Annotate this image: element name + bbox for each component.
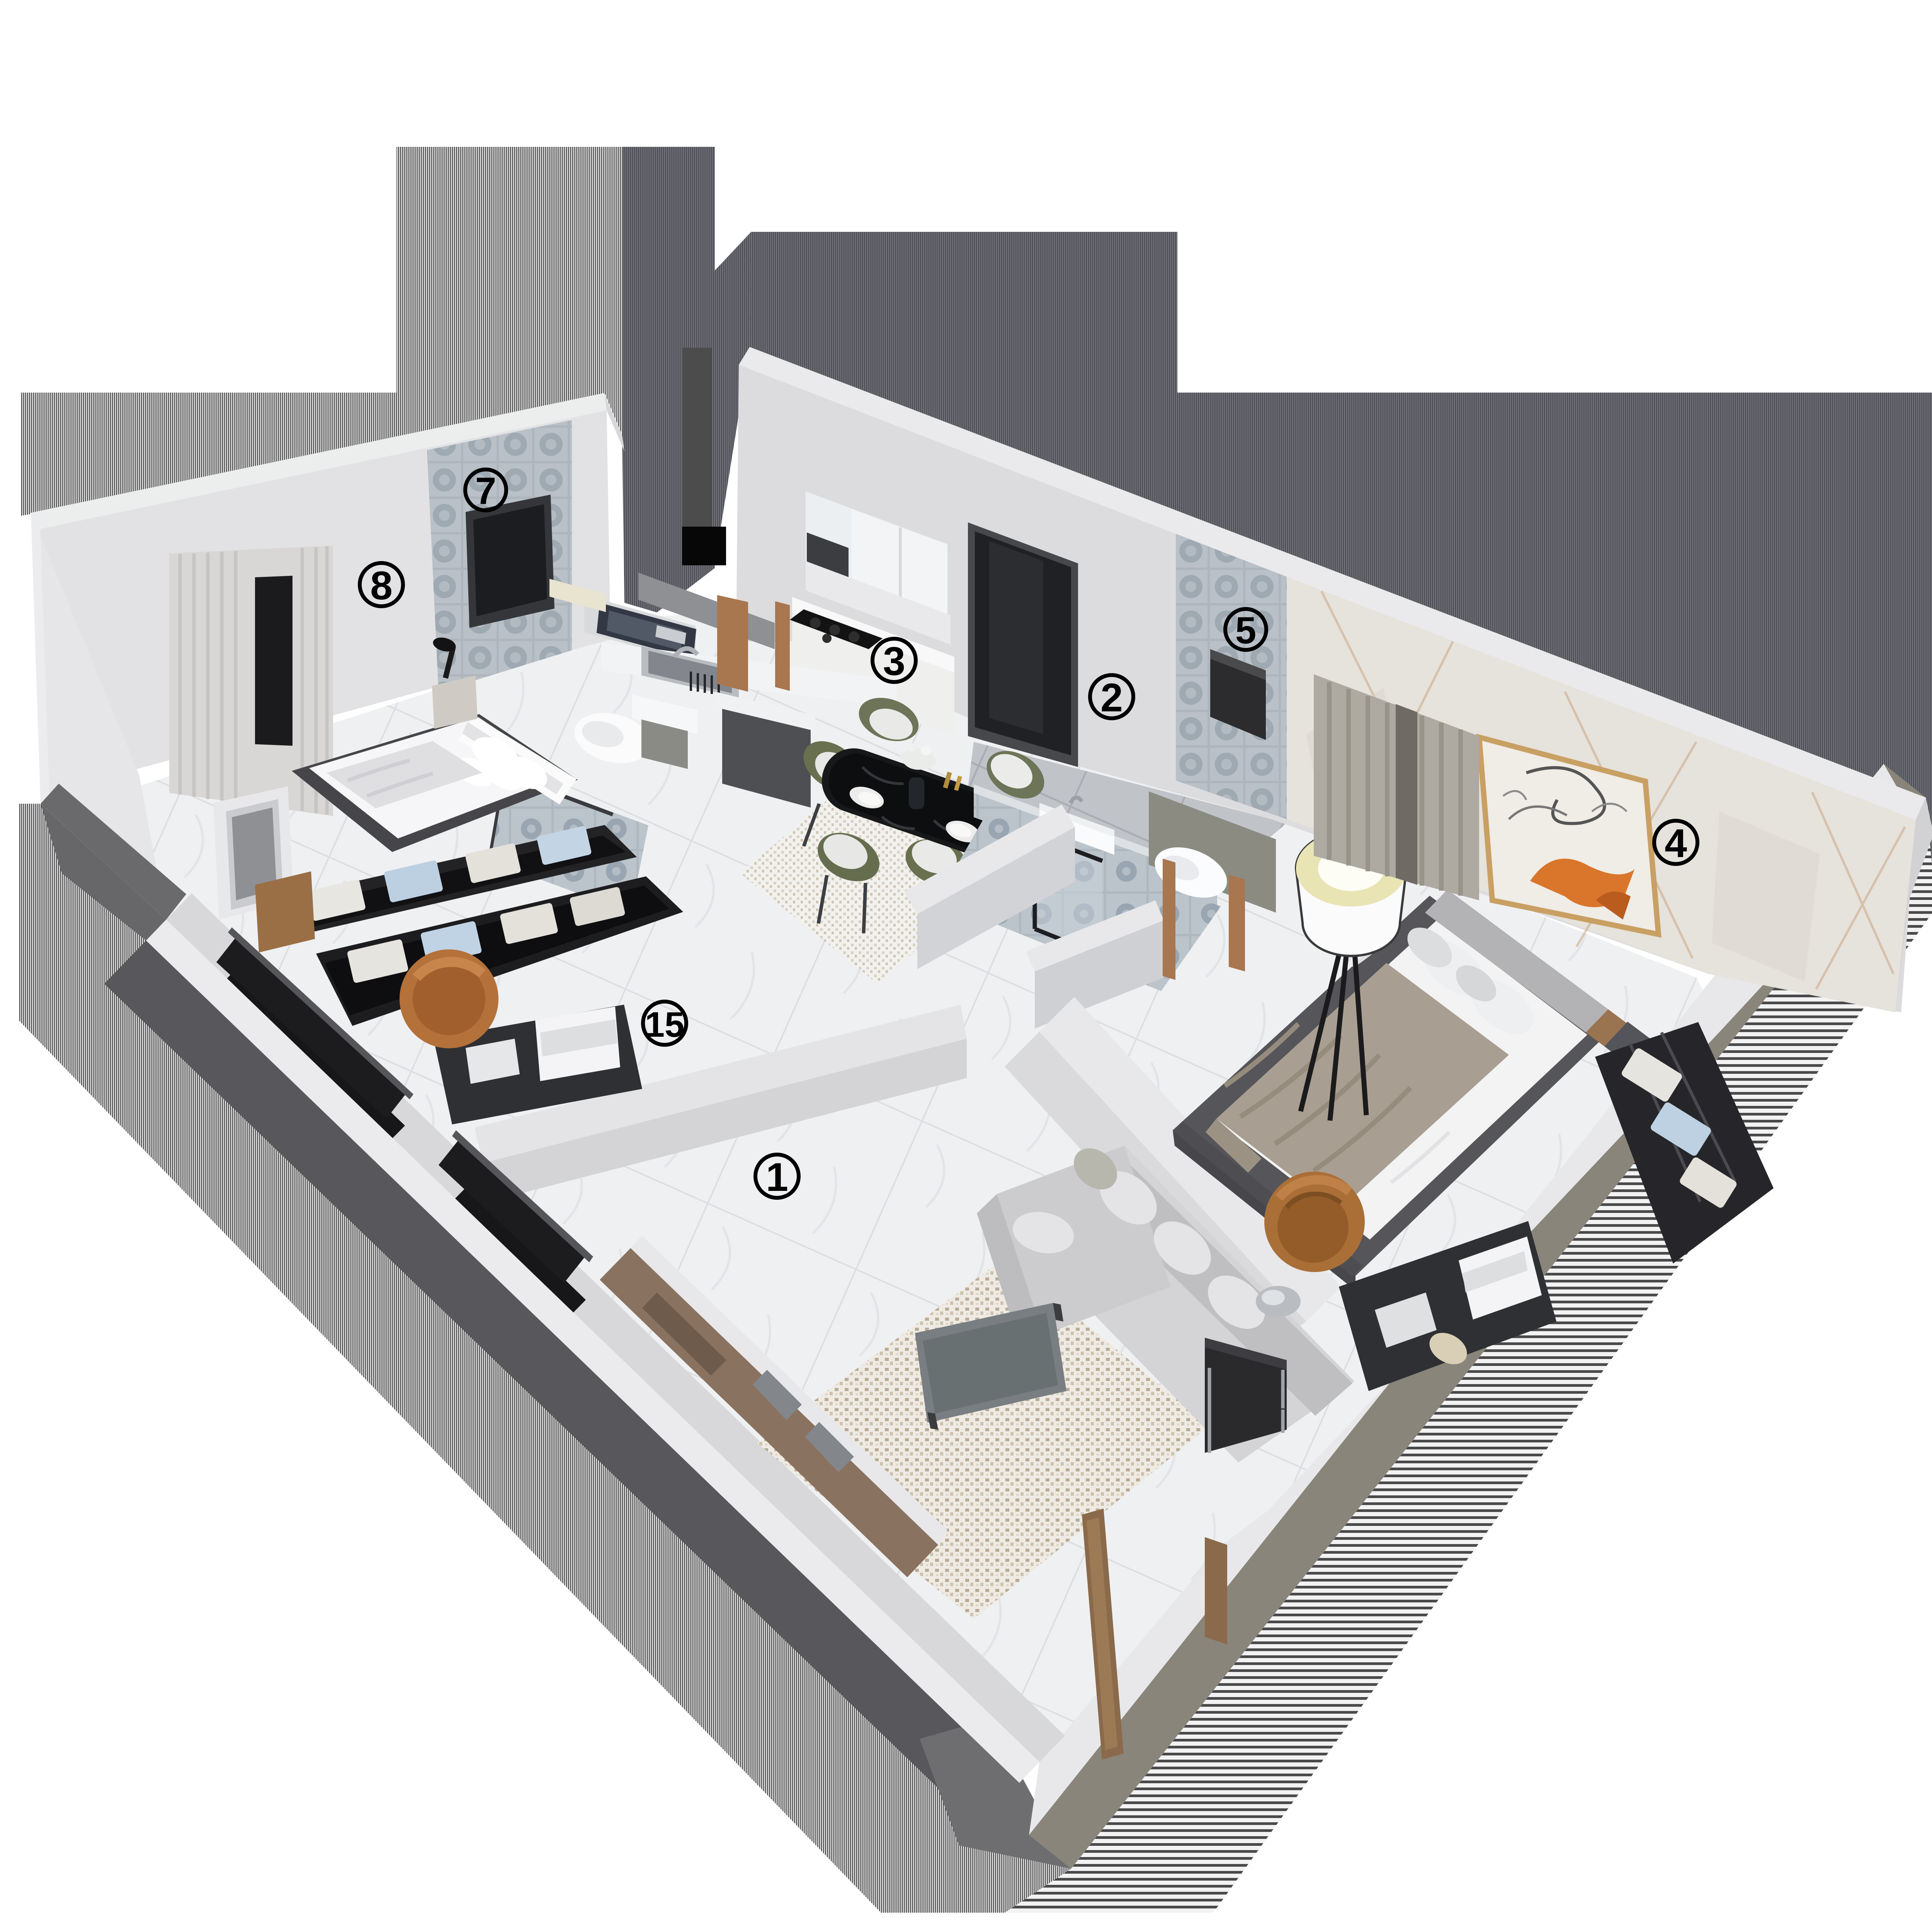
- svg-text:4: 4: [1665, 821, 1687, 866]
- svg-text:5: 5: [1235, 609, 1257, 651]
- svg-text:1: 1: [766, 1155, 788, 1200]
- svg-text:7: 7: [475, 469, 497, 512]
- svg-text:3: 3: [883, 639, 905, 684]
- svg-text:2: 2: [1100, 675, 1123, 720]
- svg-text:15: 15: [645, 1005, 684, 1044]
- svg-text:8: 8: [370, 563, 393, 608]
